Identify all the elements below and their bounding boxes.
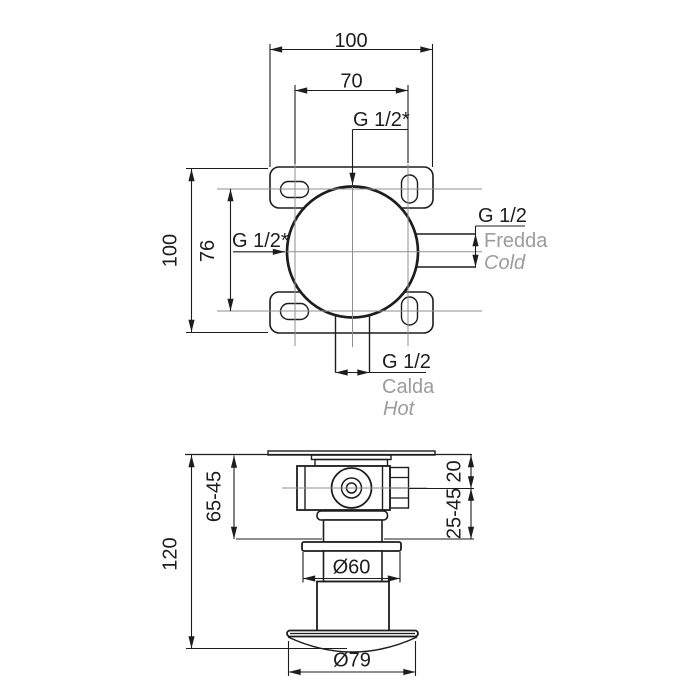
dim-slot-spacing: 76	[197, 189, 231, 311]
plan-view: 100 70 G 1/2* 100 76	[160, 30, 549, 420]
cold-inlet-callout: G 1/2 Fredda Cold	[476, 205, 549, 274]
neck-upper	[324, 520, 383, 542]
dim-label-25-45: 25-45	[444, 488, 466, 539]
left-outlet-label: G 1/2*	[232, 230, 289, 252]
left-outlet-callout: G 1/2*	[232, 230, 289, 252]
body-step	[315, 460, 388, 467]
side-view: 120 65-45 20 25-45 Ø60	[160, 451, 475, 676]
sleeve-cylinder	[317, 582, 389, 633]
dim-flange-diameter: Ø60	[303, 552, 400, 583]
dim-label-20: 20	[444, 460, 466, 482]
dim-label-d79: Ø79	[333, 650, 371, 672]
flange	[302, 542, 401, 551]
top-outlet-label: G 1/2*	[353, 109, 410, 131]
collar-ring	[317, 511, 388, 520]
dim-label-d60: Ø60	[333, 557, 371, 579]
dim-label-height-100: 100	[160, 234, 182, 267]
hot-inlet-thread-label: G 1/2	[382, 351, 431, 373]
dim-trim-diameter: Ø79	[289, 641, 416, 676]
hot-inlet-callout: G 1/2 Calda Hot	[336, 351, 436, 420]
dim-label-width-100: 100	[334, 30, 367, 52]
dim-label-120: 120	[160, 537, 182, 570]
dim-label-76: 76	[197, 240, 219, 262]
mixer-valve-diagram: 100 70 G 1/2* 100 76	[0, 0, 700, 700]
dim-label-65-45: 65-45	[204, 471, 226, 522]
cold-inlet-label-en: Cold	[484, 252, 526, 274]
hot-inlet-label-it: Calda	[382, 376, 435, 398]
technical-drawing-canvas: 100 70 G 1/2* 100 76	[0, 0, 700, 700]
dim-label-70: 70	[340, 71, 362, 93]
cold-inlet-thread-label: G 1/2	[478, 205, 527, 227]
cold-inlet-label-it: Fredda	[484, 230, 548, 252]
hot-inlet-label-en: Hot	[383, 398, 416, 420]
